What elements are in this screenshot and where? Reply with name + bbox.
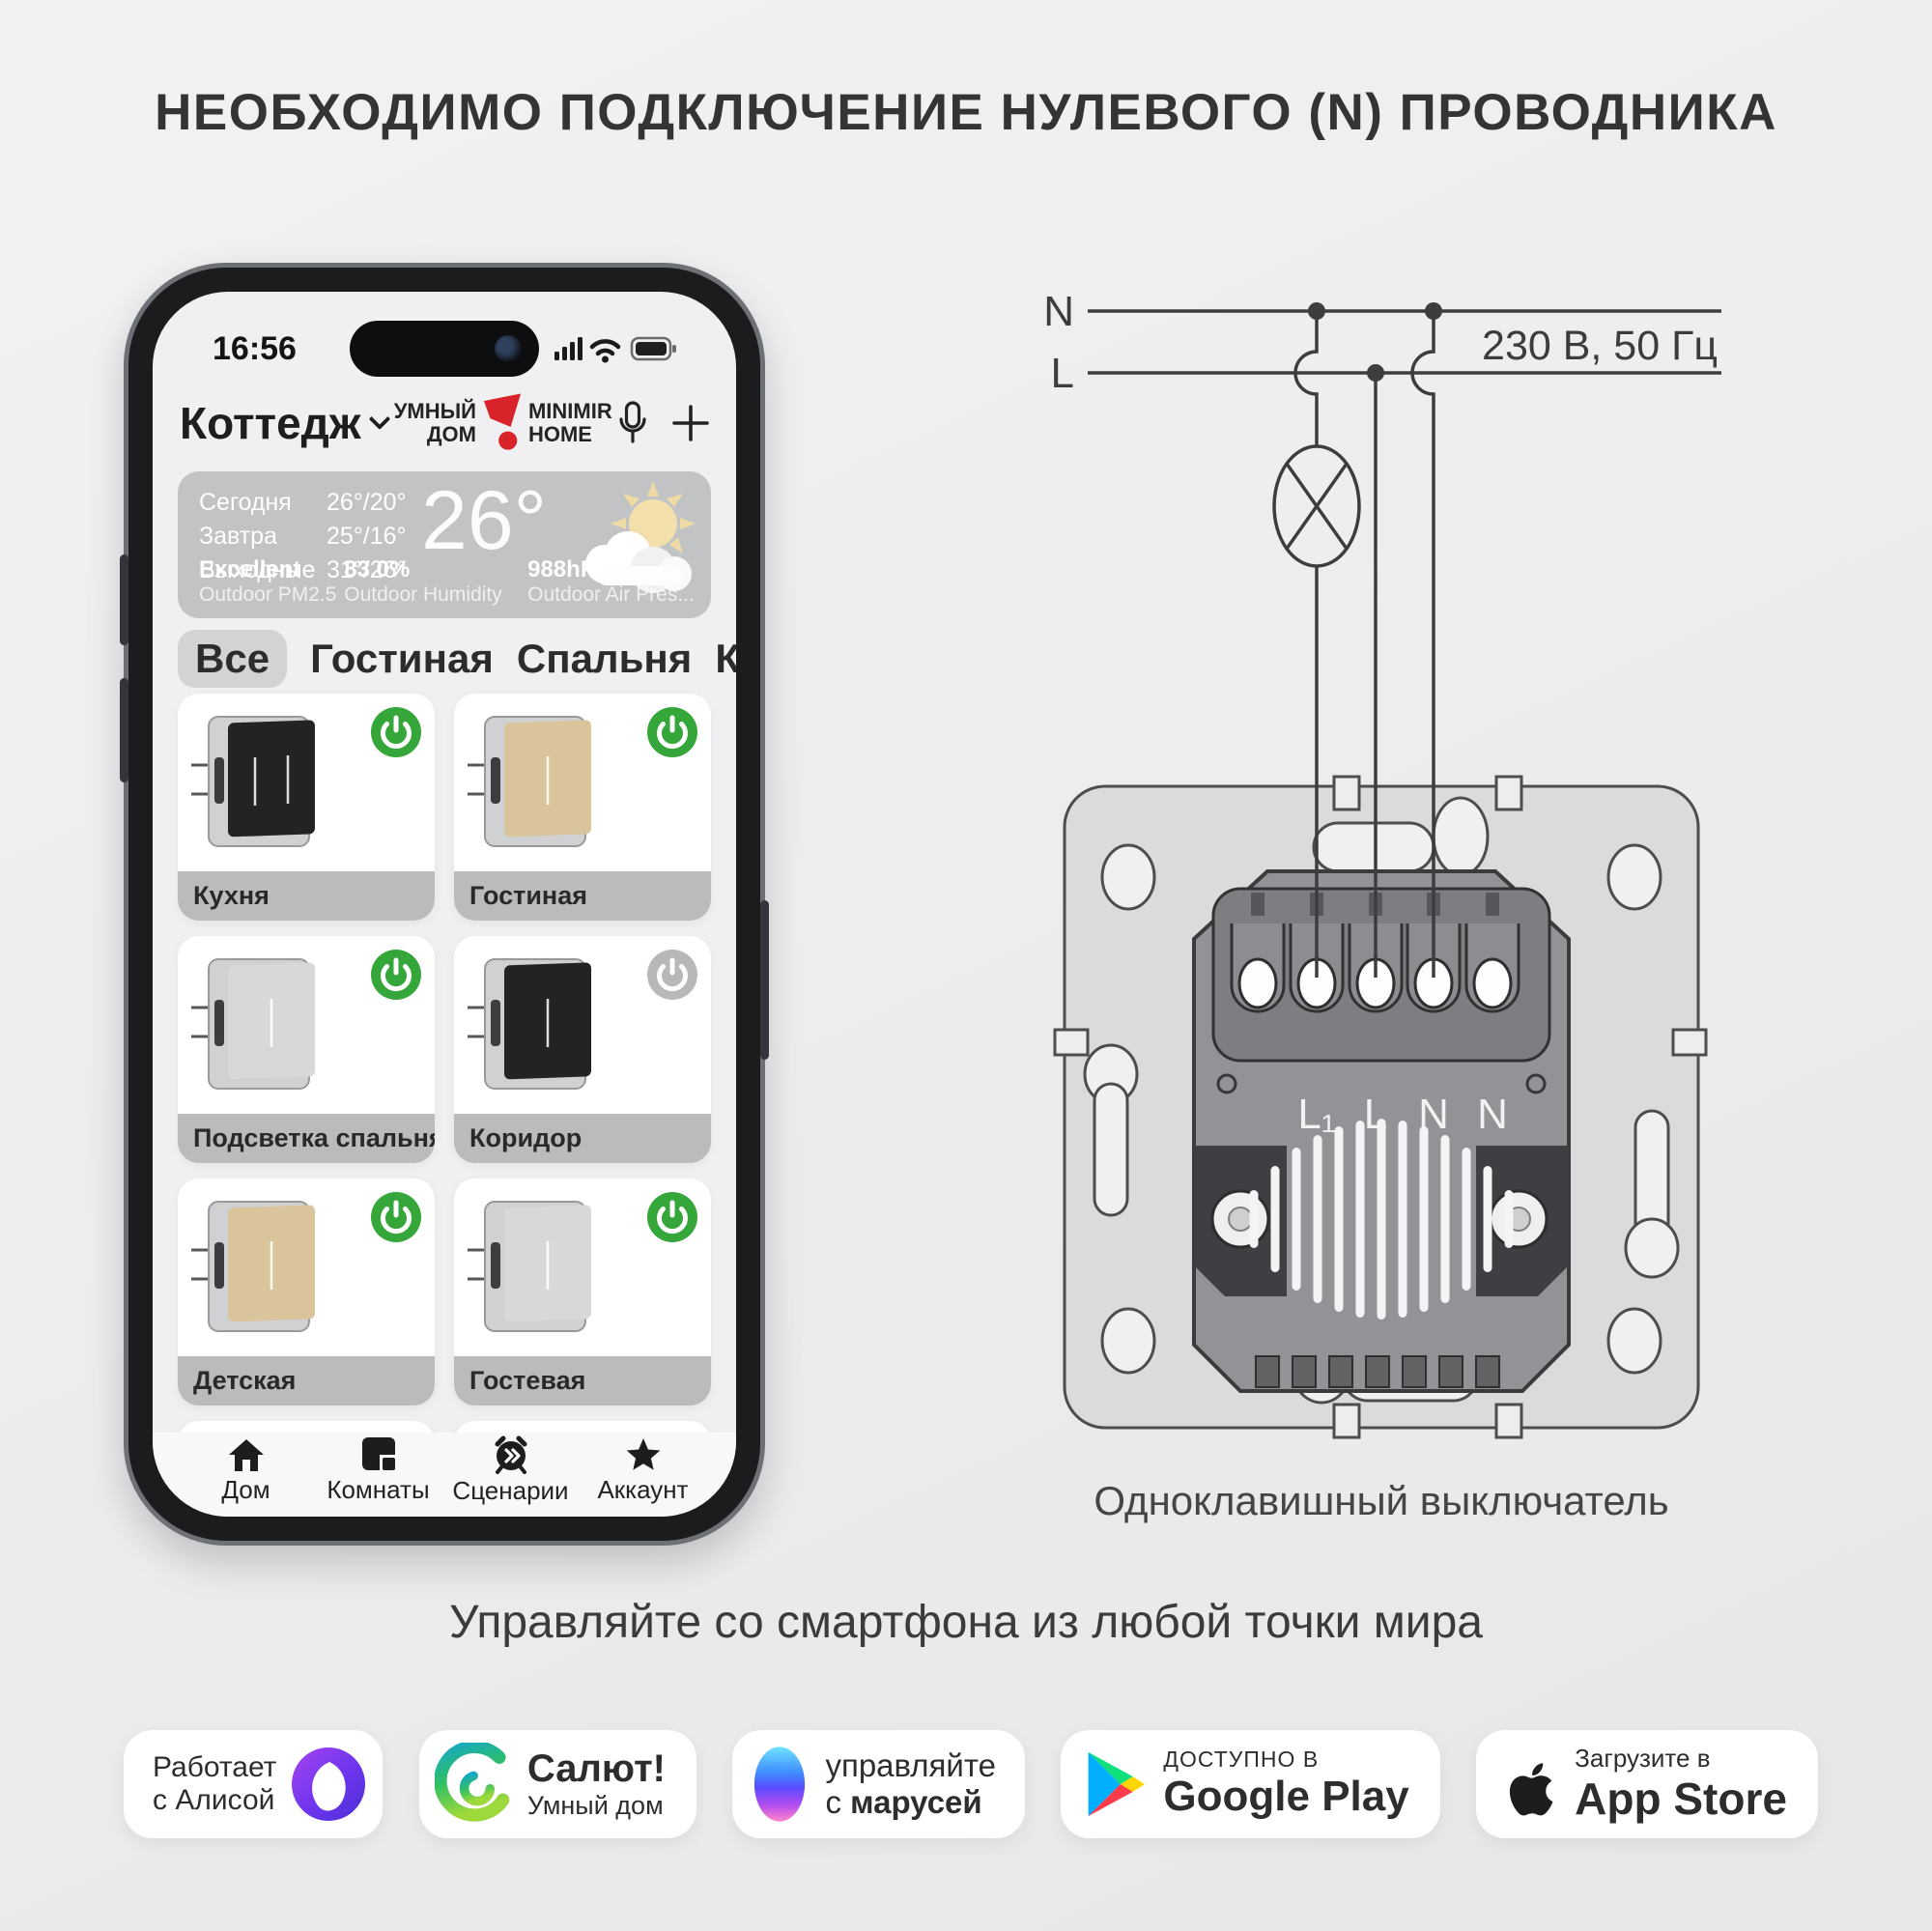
switch-image bbox=[462, 944, 607, 1106]
stat-value: Excellent bbox=[199, 556, 344, 583]
marusya-line2: марусей bbox=[850, 1784, 982, 1820]
stat-value: 83.0% bbox=[344, 556, 527, 583]
switch-image bbox=[462, 701, 607, 864]
voltage-label: 230 В, 50 Гц bbox=[1482, 323, 1718, 369]
tab-living-room[interactable]: Гостиная bbox=[310, 636, 494, 682]
camera-icon bbox=[495, 335, 522, 362]
phone-screen: 16:56 Коттедж bbox=[153, 292, 736, 1517]
alice-line1: Работает bbox=[153, 1751, 276, 1785]
alice-badge[interactable]: Работает с Алисой bbox=[124, 1730, 383, 1838]
dynamic-island bbox=[350, 321, 539, 377]
battery-icon bbox=[632, 338, 676, 359]
current-temperature: 26° bbox=[421, 473, 547, 569]
home-icon bbox=[227, 1436, 266, 1473]
room-tabs: Все Гостиная Спальня Коридор bbox=[178, 626, 736, 692]
device-card[interactable]: Коридор bbox=[454, 936, 711, 1163]
app-header: Коттедж УМНЫЙ ДОМ MINIMIR HOME bbox=[180, 388, 709, 458]
salut-line1: Салют! bbox=[527, 1746, 666, 1791]
switch-image bbox=[462, 1186, 607, 1349]
device-name: Кухня bbox=[178, 871, 435, 921]
brand-word-3: MINIMIR bbox=[528, 400, 612, 423]
nav-item-home[interactable]: Дом bbox=[188, 1436, 304, 1505]
wiring-diagram: N L 230 В, 50 Гц bbox=[995, 232, 1768, 1546]
alice-line2: с Алисой bbox=[153, 1784, 276, 1818]
alarm-icon bbox=[491, 1435, 531, 1474]
forecast-day: Сегодня bbox=[199, 489, 327, 517]
alice-logo-icon bbox=[290, 1746, 367, 1823]
page: НЕОБХОДИМО ПОДКЛЮЧЕНИЕ НУЛЕВОГО (N) ПРОВ… bbox=[0, 0, 1932, 1931]
power-toggle-icon[interactable] bbox=[369, 1190, 423, 1244]
salut-badge[interactable]: Салют! Умный дом bbox=[419, 1730, 696, 1838]
power-toggle-icon[interactable] bbox=[369, 948, 423, 1002]
home-selector[interactable]: Коттедж bbox=[180, 397, 387, 449]
device-card[interactable]: Подсветка спальня bbox=[178, 936, 435, 1163]
marusya-logo-icon bbox=[752, 1744, 808, 1825]
stat-label: Outdoor PM2.5 bbox=[199, 583, 344, 607]
diagram-caption: Одноклавишный выключатель bbox=[1094, 1478, 1668, 1523]
stat-label: Outdoor Humidity bbox=[344, 583, 527, 607]
home-name: Коттедж bbox=[180, 397, 360, 449]
nav-item-rooms[interactable]: Комнаты bbox=[321, 1436, 437, 1505]
bottom-nav: Дом Комнаты bbox=[153, 1433, 736, 1517]
status-icons bbox=[554, 334, 682, 363]
rooms-icon bbox=[359, 1436, 398, 1473]
n-wire-label: N bbox=[1043, 288, 1074, 335]
l-wire-label: L bbox=[1051, 350, 1074, 397]
device-name: Коридор bbox=[454, 1114, 711, 1163]
page-title: НЕОБХОДИМО ПОДКЛЮЧЕНИЕ НУЛЕВОГО (N) ПРОВ… bbox=[0, 83, 1932, 142]
chevron-down-icon bbox=[369, 408, 391, 430]
power-toggle-icon[interactable] bbox=[645, 1190, 699, 1244]
power-side-button bbox=[760, 900, 769, 1060]
google-play-badge[interactable]: ДОСТУПНО В Google Play bbox=[1061, 1730, 1439, 1838]
tab-all[interactable]: Все bbox=[178, 630, 287, 688]
brand-word-4: HOME bbox=[528, 423, 612, 446]
junction-dots bbox=[1308, 302, 1442, 382]
device-name: Гостевая bbox=[454, 1356, 711, 1406]
marusya-line2-prefix: с bbox=[825, 1784, 850, 1820]
wifi-icon bbox=[592, 341, 618, 354]
power-toggle-icon[interactable] bbox=[645, 705, 699, 759]
device-card[interactable]: Гостевая bbox=[454, 1178, 711, 1406]
salut-logo-icon bbox=[435, 1743, 518, 1826]
appstore-line1: Загрузите в bbox=[1575, 1745, 1787, 1774]
appstore-line2: App Store bbox=[1575, 1774, 1787, 1825]
device-card[interactable]: Гостиная bbox=[454, 694, 711, 921]
device-name: Детская bbox=[178, 1356, 435, 1406]
volume-up-button bbox=[120, 554, 128, 645]
switch-image bbox=[185, 944, 330, 1106]
brand-logo: УМНЫЙ ДОМ MINIMIR HOME bbox=[394, 393, 612, 453]
star-icon bbox=[624, 1436, 663, 1473]
tab-bedroom[interactable]: Спальня bbox=[517, 636, 692, 682]
salut-line2: Умный дом bbox=[527, 1791, 666, 1821]
google-play-icon bbox=[1080, 1746, 1150, 1823]
switch-image bbox=[185, 1186, 330, 1349]
switch-mechanism: L₁ L N N bbox=[1194, 871, 1569, 1391]
nav-item-scenarios[interactable]: Сценарии bbox=[453, 1435, 569, 1506]
tagline: Управляйте со смартфона из любой точки м… bbox=[0, 1596, 1932, 1649]
power-toggle-icon[interactable] bbox=[645, 948, 699, 1002]
power-toggle-icon[interactable] bbox=[369, 705, 423, 759]
stat-label: Outdoor Air Pres... bbox=[527, 583, 705, 607]
microphone-icon[interactable] bbox=[618, 401, 647, 445]
brand-word-2: ДОМ bbox=[394, 423, 476, 446]
device-name: Гостиная bbox=[454, 871, 711, 921]
device-grid: Кухня bbox=[178, 694, 711, 1517]
gplay-line1: ДОСТУПНО В bbox=[1163, 1746, 1408, 1772]
marusya-badge[interactable]: управляйте с марусей bbox=[732, 1730, 1025, 1838]
brand-word-1: УМНЫЙ bbox=[394, 400, 476, 423]
store-badges: Работает с Алисой Салют! Умны bbox=[124, 1729, 1818, 1839]
device-name: Подсветка спальня bbox=[178, 1114, 435, 1163]
nav-item-account[interactable]: Аккаунт bbox=[585, 1436, 701, 1505]
terminal-label-l1: L₁ bbox=[1297, 1091, 1335, 1138]
app-store-badge[interactable]: Загрузите в App Store bbox=[1476, 1730, 1818, 1838]
phone-mockup: 16:56 Коттедж bbox=[124, 263, 765, 1546]
tab-corridor[interactable]: Коридор bbox=[715, 636, 736, 682]
add-icon[interactable] bbox=[672, 405, 709, 441]
forecast-temp: 25°/16° bbox=[327, 523, 407, 551]
device-card[interactable]: Детская bbox=[178, 1178, 435, 1406]
brand-mark-icon bbox=[482, 393, 523, 453]
marusya-line1: управляйте bbox=[825, 1747, 996, 1784]
status-time: 16:56 bbox=[213, 330, 297, 368]
weather-card[interactable]: Сегодня26°/20° Завтра25°/16° Выходные31°… bbox=[178, 471, 711, 618]
gplay-line2: Google Play bbox=[1163, 1773, 1408, 1822]
stat-value: 988hPa bbox=[527, 556, 705, 583]
forecast-temp: 26°/20° bbox=[327, 489, 407, 517]
signal-icon bbox=[554, 337, 582, 360]
device-card[interactable]: Кухня bbox=[178, 694, 435, 921]
apple-logo-icon bbox=[1499, 1747, 1559, 1821]
volume-down-button bbox=[120, 678, 128, 782]
terminal-label-n2: N bbox=[1477, 1091, 1508, 1138]
forecast-day: Завтра bbox=[199, 523, 327, 551]
switch-image bbox=[185, 701, 330, 864]
